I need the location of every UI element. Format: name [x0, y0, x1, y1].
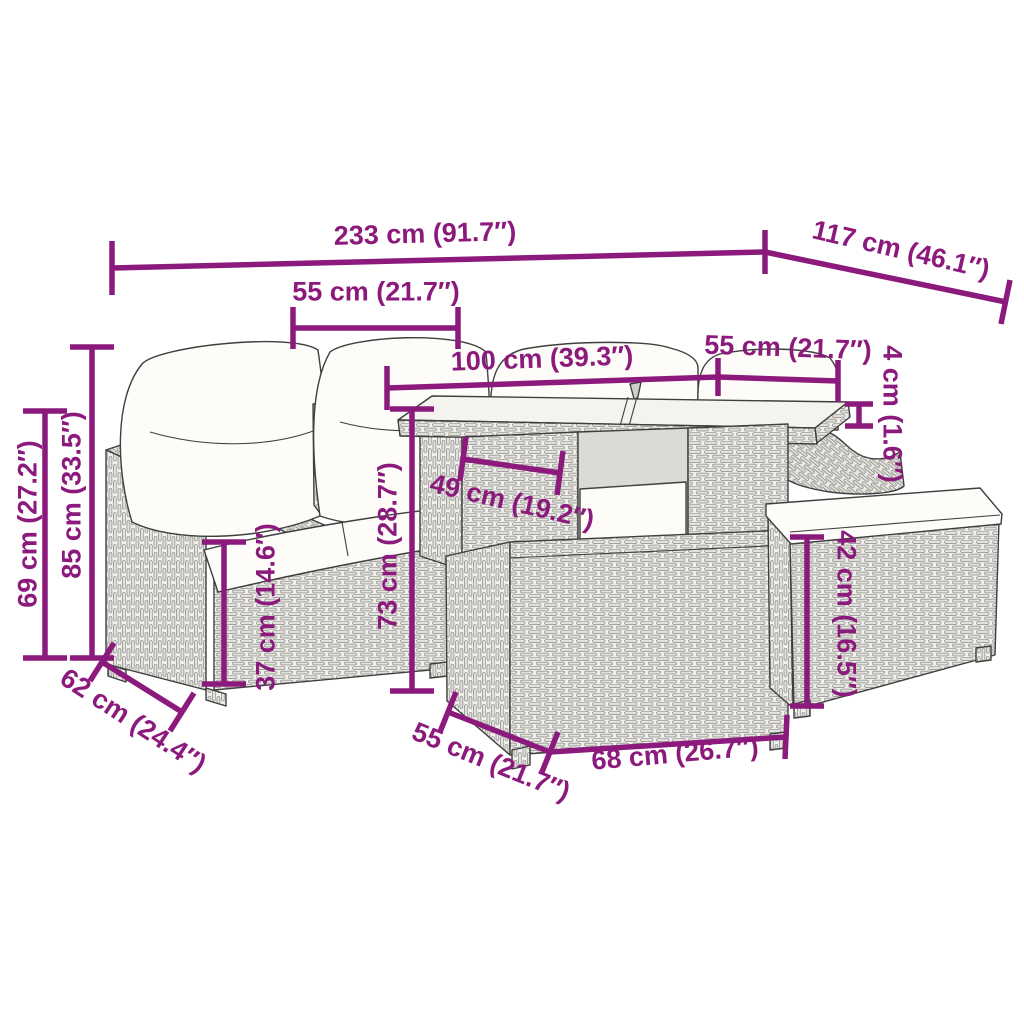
ottoman-side [768, 518, 793, 708]
dim-seat-width-label: 55 cm (21.7″) [292, 279, 460, 306]
dim-seat-height-label: 37 cm (14.6″) [253, 523, 280, 691]
dimension-diagram: 233 cm (91.7″) 117 cm (46.1″) 55 cm (21.… [0, 0, 1024, 1024]
dim-table-depth-label: 55 cm (21.7″) [704, 332, 872, 365]
back-pillow-left [120, 342, 326, 537]
dim-arm-height-label: 69 cm (27.2″) [15, 440, 42, 608]
dim-table-width-label: 100 cm (39.3″) [450, 342, 633, 375]
dim-stool-height-label: 42 cm (16.5″) [833, 530, 860, 698]
dim-table-height-label: 73 cm (28.7″) [375, 462, 402, 630]
box-front [510, 530, 788, 755]
dim-glass-thickness-label: 4 cm (1.6″) [879, 345, 906, 483]
ottoman-leg [976, 646, 991, 662]
dim-back-height-label: 85 cm (33.5″) [59, 411, 86, 579]
sofa-leg [206, 688, 226, 706]
dim-overall-width-label: 233 cm (91.7″) [333, 218, 516, 250]
sofa-leg [430, 662, 448, 678]
ottoman-box [790, 521, 999, 710]
right-ottoman [766, 488, 1002, 718]
